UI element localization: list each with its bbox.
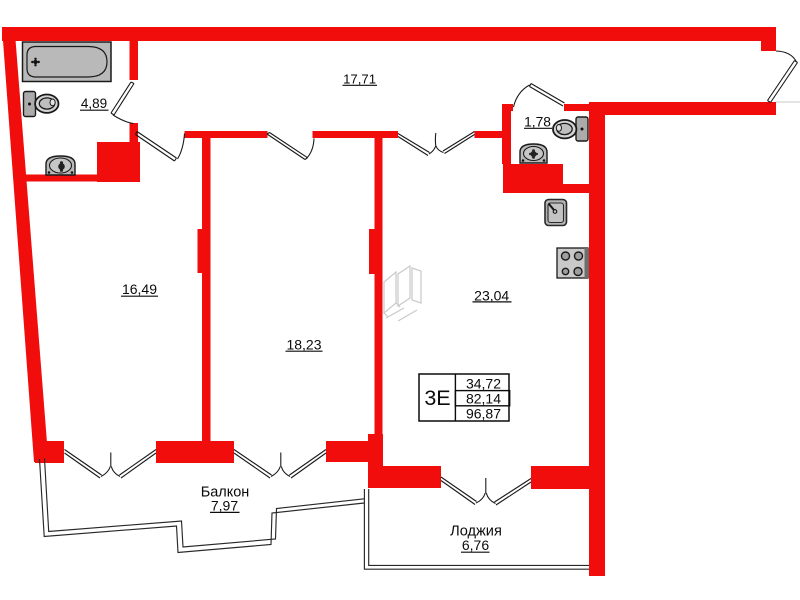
svg-text:1,78: 1,78 xyxy=(524,115,551,130)
svg-text:16,49: 16,49 xyxy=(122,281,157,297)
svg-text:96,87: 96,87 xyxy=(466,406,501,422)
svg-text:82,14: 82,14 xyxy=(466,391,501,407)
svg-text:18,23: 18,23 xyxy=(286,336,321,352)
svg-text:7,97: 7,97 xyxy=(211,498,238,514)
svg-text:17,71: 17,71 xyxy=(343,72,376,87)
svg-text:4,89: 4,89 xyxy=(81,96,107,111)
svg-text:23,04: 23,04 xyxy=(474,287,509,303)
svg-text:6,76: 6,76 xyxy=(462,537,489,553)
svg-text:3Е: 3Е xyxy=(424,386,450,410)
svg-text:34,72: 34,72 xyxy=(466,375,501,391)
